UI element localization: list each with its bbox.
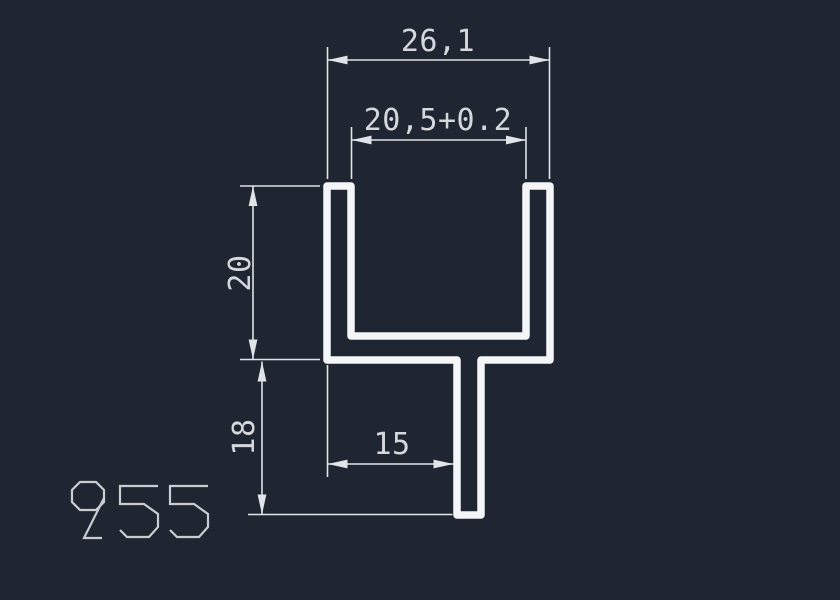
dim-outer-width: 26,1 <box>328 24 550 179</box>
arrowhead-top <box>249 186 258 206</box>
dim-label-outer-width: 26,1 <box>401 24 475 59</box>
dim-inner-width: 20,5+0.2 <box>352 103 527 179</box>
arrowhead-left <box>328 56 348 65</box>
arrowhead-right <box>434 460 454 469</box>
dim-label-inner-width: 20,5+0.2 <box>364 103 513 138</box>
part-number-text: 955 <box>66 467 215 556</box>
dim-stem-height: 18 <box>227 362 453 515</box>
arrowhead-top <box>258 362 267 382</box>
dim-stem-offset: 15 <box>328 365 454 477</box>
profile-drawing-svg: 26,1 20,5+0.2 20 18 <box>0 0 840 600</box>
arrowhead-bottom <box>258 495 267 515</box>
dim-label-stem-offset: 15 <box>373 427 410 462</box>
dim-label-stem-height: 18 <box>227 418 262 455</box>
dim-channel-height: 20 <box>223 186 320 360</box>
arrowhead-right <box>530 56 550 65</box>
arrowhead-left <box>328 460 348 469</box>
dim-label-channel-height: 20 <box>223 254 258 291</box>
part-number: 955 <box>66 467 215 556</box>
arrowhead-bottom <box>249 340 258 360</box>
cad-drawing-canvas: 26,1 20,5+0.2 20 18 <box>0 0 840 600</box>
